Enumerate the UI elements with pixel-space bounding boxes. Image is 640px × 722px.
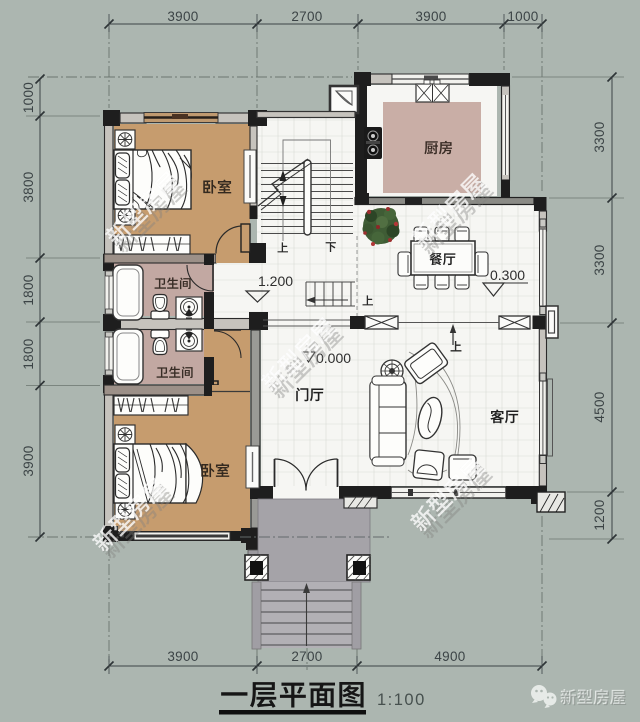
svg-text:1000: 1000 bbox=[21, 82, 36, 113]
svg-text:4500: 4500 bbox=[592, 391, 607, 422]
svg-text:1000: 1000 bbox=[507, 9, 538, 24]
svg-text:2700: 2700 bbox=[291, 649, 322, 664]
svg-text:1800: 1800 bbox=[21, 274, 36, 305]
svg-text:0.300: 0.300 bbox=[490, 267, 525, 283]
svg-text:3900: 3900 bbox=[21, 445, 36, 476]
svg-text:4900: 4900 bbox=[434, 649, 465, 664]
svg-text:1200: 1200 bbox=[592, 499, 607, 530]
svg-text:1.200: 1.200 bbox=[258, 273, 293, 289]
svg-text:2700: 2700 bbox=[291, 9, 322, 24]
svg-text:1800: 1800 bbox=[21, 338, 36, 369]
svg-text:1:100: 1:100 bbox=[377, 691, 426, 709]
svg-text:3900: 3900 bbox=[415, 9, 446, 24]
svg-text:3900: 3900 bbox=[167, 9, 198, 24]
svg-text:3300: 3300 bbox=[592, 244, 607, 275]
svg-text:3300: 3300 bbox=[592, 121, 607, 152]
svg-text:3900: 3900 bbox=[167, 649, 198, 664]
svg-text:3800: 3800 bbox=[21, 171, 36, 202]
